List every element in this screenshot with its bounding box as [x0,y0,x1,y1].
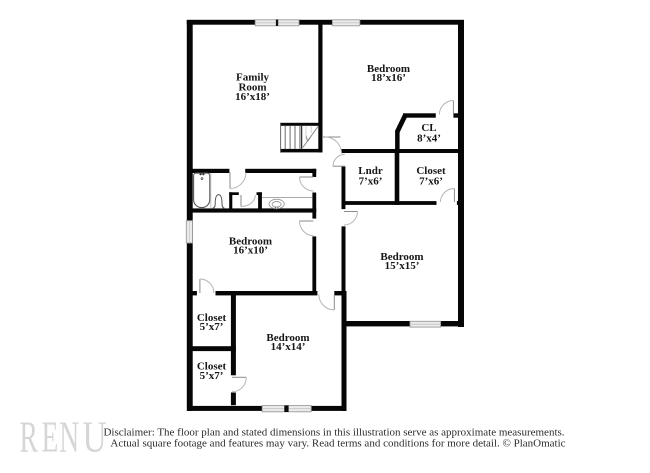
svg-text:Actual square footage and feat: Actual square footage and features may v… [110,437,565,449]
svg-text:N: N [59,413,79,462]
svg-text:7’x6’: 7’x6’ [359,175,383,187]
svg-text:16’x10’: 16’x10’ [233,245,268,257]
svg-text:18’x16’: 18’x16’ [371,72,406,84]
svg-text:7’x6’: 7’x6’ [419,175,443,187]
svg-text:14’x14’: 14’x14’ [271,341,306,353]
svg-text:5’x7’: 5’x7’ [200,321,224,333]
svg-text:16’x18’: 16’x18’ [235,91,270,103]
svg-text:5’x7’: 5’x7’ [200,370,224,382]
svg-text:R: R [20,413,39,462]
svg-text:8’x4’: 8’x4’ [417,133,441,145]
svg-text:15’x15’: 15’x15’ [385,260,420,272]
svg-text:E: E [42,413,59,462]
